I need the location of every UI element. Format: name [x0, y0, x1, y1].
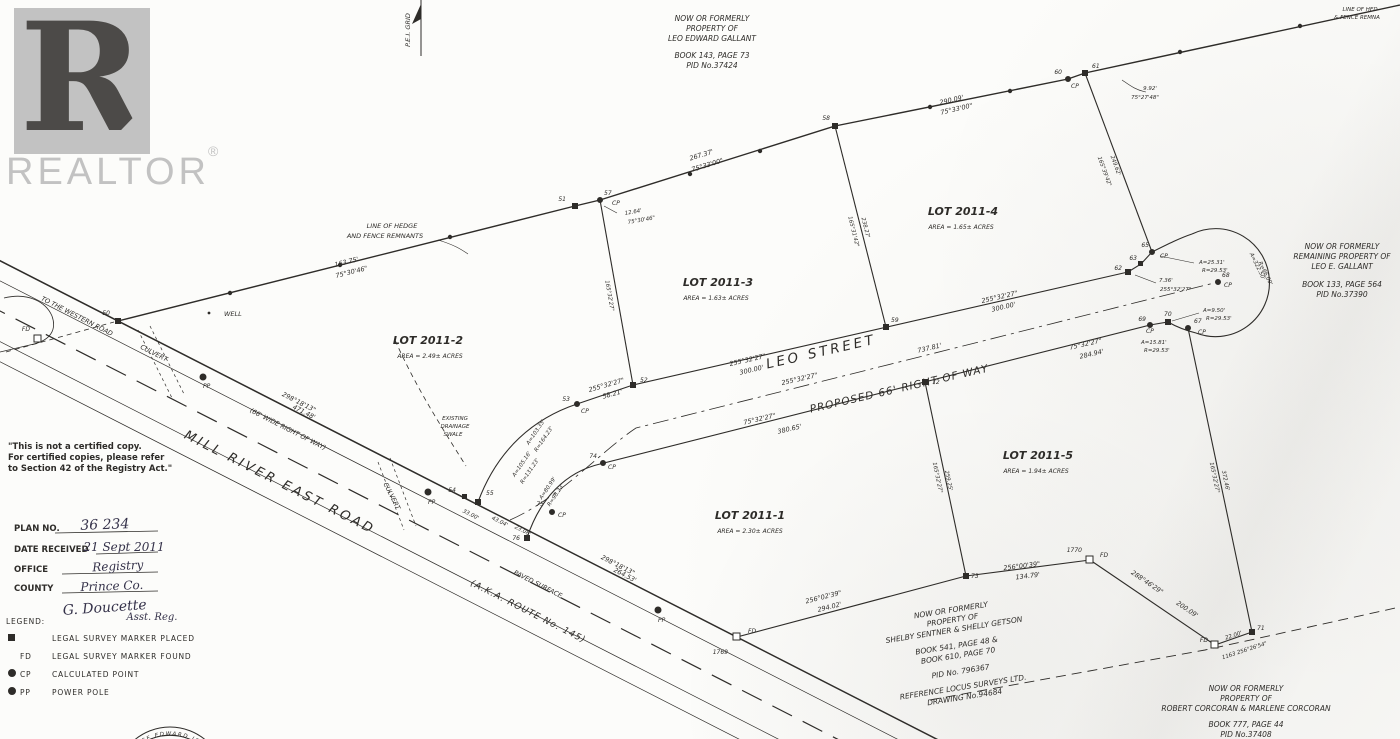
parcel-note-line: PROPERTY OF — [686, 24, 739, 33]
parcel-book-ref: BOOK 133, PAGE 564 — [1302, 280, 1382, 289]
realtor-watermark-logo: R REALTOR ® — [6, 0, 219, 193]
dim-distance: 7.36' — [1159, 278, 1173, 284]
right-of-way-label: PROPOSED 66' RIGHT OF WAY — [809, 363, 991, 416]
power-pole-label: PP — [658, 617, 666, 624]
dim-distance: 284.94' — [1079, 347, 1105, 360]
marker-id: 60 — [1054, 69, 1062, 76]
street-name: LEO STREET — [764, 332, 877, 373]
lot-area: AREA = 2.30± ACRES — [716, 528, 783, 535]
dim-distance: 259.25' — [943, 470, 953, 492]
hedge-note-line: AND FENCE REMNANTS — [346, 232, 423, 240]
power-pole-label: PP — [428, 499, 436, 506]
fence-post-dots — [228, 24, 1301, 294]
hedge-label-leader — [438, 240, 468, 254]
marker-id: 65 — [1141, 242, 1149, 249]
parcel-note-gallant-east: NOW OR FORMERLY REMAINING PROPERTY OF LE… — [1293, 242, 1391, 299]
dim-distance: 380.65' — [777, 422, 803, 435]
found-markers — [34, 335, 1218, 648]
marker-id: 67 — [1194, 318, 1202, 325]
parcel-note-line: LEO E. GALLANT — [1311, 262, 1374, 271]
office-value: Registry — [91, 558, 144, 575]
paved-surface-label: PAVED SURFACE — [512, 569, 564, 601]
marker-tag: CP — [608, 464, 616, 471]
marker-id: 73 — [971, 573, 979, 580]
south-boundary-labels: 256°02'39" 294.02' 256°00'39" 134.79' 28… — [805, 560, 1268, 661]
marker-id: 68 — [1222, 272, 1230, 279]
realtor-wordmark: REALTOR — [6, 151, 210, 193]
road-name: MILL RIVER EAST ROAD — [182, 428, 378, 538]
marker-tag: FD — [748, 628, 756, 635]
marker-id: 50 — [102, 310, 110, 317]
legend-item-label: CALCULATED POINT — [52, 670, 139, 679]
marker-id: 51 — [558, 196, 566, 203]
parcel-book-ref: BOOK 777, PAGE 44 — [1208, 720, 1283, 729]
lot-area: AREA = 1.94± ACRES — [1002, 468, 1069, 475]
marker-tag: CP — [1224, 282, 1232, 289]
legend-item-label: LEGAL SURVEY MARKER PLACED — [52, 634, 195, 643]
dim-distance: 33.00' — [461, 509, 479, 522]
parcel-note-sentner: NOW OR FORMERLY PROPERTY OF SHELBY SENTN… — [882, 595, 1034, 713]
marker-tag: CP — [558, 512, 566, 519]
street-north-curve — [478, 385, 633, 502]
certification-disclaimer: "This is not a certified copy. For certi… — [8, 442, 172, 474]
marker-id: 55 — [486, 490, 494, 497]
marker-tag: FD — [1200, 637, 1208, 644]
parcel-pid: PID No.37424 — [686, 61, 738, 70]
parcel-note-line: NOW OR FORMERLY — [1209, 684, 1285, 693]
lot-name: LOT 2011-1 — [715, 509, 785, 522]
marker-tag: CP — [612, 200, 620, 207]
dim-bearing: 288°46'29" — [1130, 569, 1165, 596]
marker-id: 62 — [1114, 265, 1122, 272]
marker-id: 69 — [1138, 316, 1146, 323]
dim-distance: 12.64' — [624, 208, 642, 217]
lot-area: AREA = 2.49± ACRES — [396, 353, 463, 360]
legend-filled-circle-icon — [9, 688, 16, 695]
culvert-label: CULVERT — [139, 343, 170, 364]
parcel-note-corcoran: NOW OR FORMERLY PROPERTY OF ROBERT CORCO… — [1161, 684, 1331, 739]
marker-tag: CP — [1198, 329, 1206, 336]
culvert-marks-1 — [138, 326, 184, 398]
marker-id: 53 — [562, 396, 570, 403]
marker-id: 63 — [1129, 255, 1137, 262]
dim-distance: 200.09' — [1175, 599, 1200, 619]
parcel-note-line: PROPERTY OF — [1220, 694, 1273, 703]
parcel-note-gallant-top: NOW OR FORMERLY PROPERTY OF LEO EDWARD G… — [668, 14, 757, 70]
marker-tag-number: 1769 — [713, 649, 728, 656]
marker-id: 52 — [640, 377, 648, 384]
parcel-pid: PID No.37390 — [1316, 290, 1368, 299]
cul-de-sac-labels: A=25.31' R=29.53' 7.36' 255°32'27" A=322… — [1140, 251, 1273, 354]
hedge-note-truncated: & FENCE REMNA — [1334, 15, 1380, 21]
marker-tag-number: 1770 — [1067, 547, 1082, 554]
legend-item-tag: FD — [20, 652, 32, 661]
dim-bearing: 165°32'27" — [603, 280, 614, 312]
culvert-marks-2 — [378, 458, 416, 530]
marker-id: 70 — [1164, 311, 1172, 318]
marker-id: 75 — [536, 501, 544, 508]
date-received-label: DATE RECEIVED — [14, 545, 89, 555]
legend-filled-square-icon — [8, 634, 15, 641]
legend-item-label: POWER POLE — [52, 688, 110, 697]
dim-bearing: 255°32'27" — [781, 371, 819, 387]
plan-info-box: PLAN NO. DATE RECEIVED OFFICE COUNTY 36 … — [8, 512, 177, 623]
swale-label-line: EXISTING — [442, 416, 468, 422]
lot-name: LOT 2011-2 — [393, 334, 463, 347]
arc-length: A=25.31' — [1198, 260, 1225, 266]
marker-id: 58 — [822, 115, 830, 122]
parcel-note-line: LEO EDWARD GALLANT — [668, 34, 757, 43]
legend-open-square-icon — [8, 652, 15, 659]
lot-name: LOT 2011-4 — [928, 205, 998, 218]
lot-name: LOT 2011-3 — [683, 276, 753, 289]
dim-bearing: 165°39'42" — [1096, 156, 1112, 187]
marker-id: 59 — [891, 317, 899, 324]
legend-item-tag: PP — [20, 688, 31, 697]
parcel-note-line: NOW OR FORMERLY — [1305, 242, 1381, 251]
side-line-labels: 165°39'42" 249.62' 165°31'42" 238.27' 16… — [603, 155, 1230, 494]
street-labels: LEO STREET PROPOSED 66' RIGHT OF WAY 737… — [588, 289, 1105, 436]
parcel-pid: PID No.37408 — [1220, 730, 1272, 739]
registered-mark: ® — [208, 143, 219, 159]
county-label: COUNTY — [14, 584, 54, 594]
disclaimer-line: "This is not a certified copy. — [8, 442, 142, 452]
surveyor-seal: PRINCE EDWARD ISL — [8, 698, 428, 739]
dim-bearing: 165°32'27" — [1208, 462, 1220, 494]
plan-no-value: 36 234 — [80, 516, 130, 534]
north-arrow: P.E.I. GRID — [404, 0, 421, 56]
scanned-survey-plan: R REALTOR ® P.E.I. GRID — [0, 0, 1400, 739]
dim-distance: 737.81' — [917, 341, 943, 354]
dim-distance: 22.00' — [1225, 631, 1243, 642]
dim-bearing: 75°27'48" — [1131, 95, 1159, 101]
marker-id: 71 — [1257, 625, 1265, 632]
marker-tag: FD — [1100, 552, 1108, 559]
registrar-title: Asst. Reg. — [126, 612, 178, 623]
marker-id: 57 — [604, 190, 612, 197]
mill-river-road-lines — [0, 248, 956, 739]
arc-length: A=9.50' — [1202, 308, 1225, 314]
legend: LEGEND: LEGAL SURVEY MARKER PLACED FD LE… — [6, 617, 195, 697]
dim-distance: 134.79' — [1015, 571, 1041, 582]
dim-bearing: 165°32'27" — [931, 462, 943, 494]
parcel-note-line: REMAINING PROPERTY OF — [1293, 252, 1391, 261]
lot-area: AREA = 1.63± ACRES — [682, 295, 749, 302]
hedge-note-line: LINE OF HEDGE — [367, 222, 419, 230]
survey-plan-svg: R REALTOR ® P.E.I. GRID — [0, 0, 1400, 739]
marker-id: 74 — [589, 453, 597, 460]
disclaimer-line: For certified copies, please refer — [8, 453, 165, 463]
office-label: OFFICE — [14, 565, 48, 575]
legend-title: LEGEND: — [6, 617, 45, 626]
legend-filled-circle-icon — [9, 670, 16, 677]
arc-length: A=15.81' — [1140, 340, 1167, 346]
lot-area: AREA = 1.65± ACRES — [927, 224, 994, 231]
plan-no-label: PLAN NO. — [14, 524, 60, 534]
west-arc-labels: A=103.35' R=164.23' A=105.16' R=131.23' … — [461, 419, 565, 538]
swale-label-line: SWALE — [444, 432, 463, 438]
dim-bearing: 1163 256°26'54" — [1221, 641, 1268, 661]
dim-bearing: 75°32'27" — [743, 411, 777, 426]
legend-item-label: LEGAL SURVEY MARKER FOUND — [52, 652, 191, 661]
dim-bearing: 165°31'42" — [846, 216, 859, 248]
marker-tag: FD — [22, 326, 30, 333]
disclaimer-line: to Section 42 of the Registry Act." — [8, 464, 172, 474]
dim-distance: 300.00' — [739, 363, 765, 376]
power-pole-label: PP — [203, 383, 211, 390]
marker-tag: CP — [1160, 253, 1168, 260]
survey-markers — [34, 24, 1302, 648]
parcel-pid: PID No. 796367 — [931, 662, 990, 680]
marker-id: 76 — [512, 535, 520, 542]
lot-name: LOT 2011-5 — [1003, 449, 1073, 462]
marker-id: 61 — [1092, 63, 1100, 70]
arc-radius: R=29.53' — [1144, 348, 1170, 354]
marker-tag: CP — [581, 408, 589, 415]
marker-tag: CP — [1146, 328, 1154, 335]
date-received-value: 21 Sept 2011 — [82, 540, 164, 554]
well-label: WELL — [224, 310, 242, 318]
marker-id: 72 — [932, 379, 940, 386]
dim-bearing: 255°32'27" — [1160, 287, 1191, 293]
grid-label: P.E.I. GRID — [404, 13, 412, 47]
parcel-note-line: NOW OR FORMERLY — [675, 14, 751, 23]
dim-distance: 9.92' — [1143, 86, 1157, 92]
swale-label-line: DRAINAGE — [440, 424, 470, 430]
parcel-book-ref: BOOK 143, PAGE 73 — [674, 51, 749, 60]
calculated-points — [550, 77, 1221, 515]
marker-id: 54 — [448, 487, 456, 494]
well-symbol — [205, 309, 213, 317]
legend-item-tag: CP — [20, 670, 31, 679]
marker-tag: CP — [1071, 83, 1079, 90]
route-aka-label: (A.K.A. ROUTE No. 145) — [469, 579, 588, 646]
arc-radius: R=29.53' — [1206, 316, 1232, 322]
dim-bearing: 75°30'46" — [627, 215, 655, 226]
hedge-note-truncated: LINE OF HED — [1342, 7, 1377, 13]
county-value: Prince Co. — [79, 578, 143, 594]
dim-distance: 43.04' — [490, 516, 508, 529]
power-poles — [200, 374, 661, 613]
parcel-note-line: ROBERT CORCORAN & MARLENE CORCORAN — [1161, 704, 1331, 713]
